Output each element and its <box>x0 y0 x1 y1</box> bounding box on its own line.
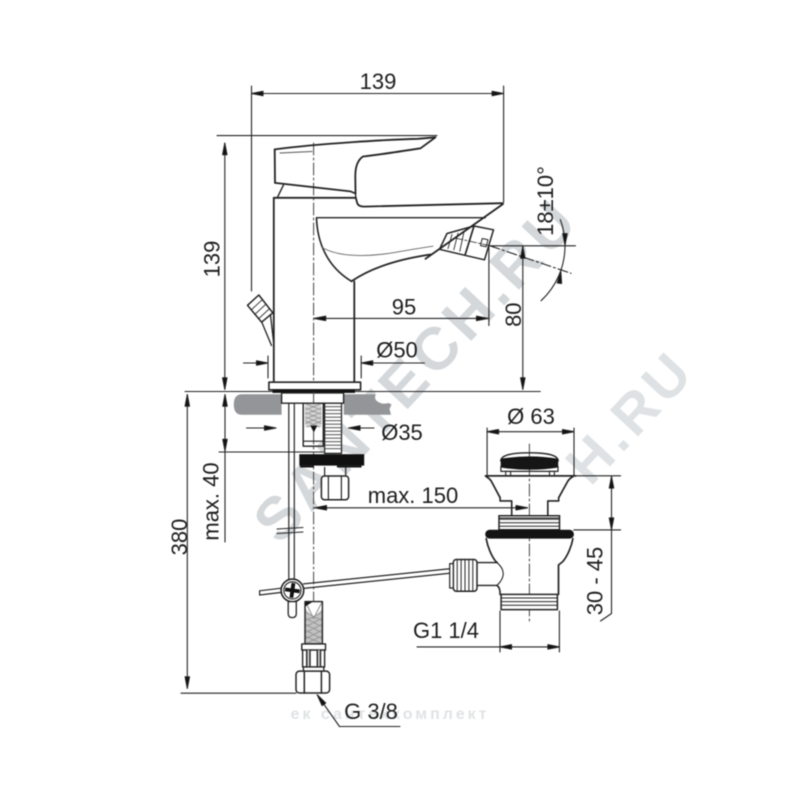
svg-text:380: 380 <box>167 519 192 556</box>
svg-text:80: 80 <box>501 302 526 326</box>
svg-text:Ø 63: Ø 63 <box>507 404 555 429</box>
svg-text:Ø35: Ø35 <box>381 420 423 445</box>
svg-text:max. 40: max. 40 <box>199 462 224 540</box>
svg-text:G1 1/4: G1 1/4 <box>413 618 479 643</box>
svg-text:Ø50: Ø50 <box>376 338 418 363</box>
svg-text:max. 150: max. 150 <box>368 483 459 508</box>
svg-text:G 3/8: G 3/8 <box>344 699 398 724</box>
svg-text:139: 139 <box>200 241 225 278</box>
svg-text:139: 139 <box>360 69 397 94</box>
svg-text:95: 95 <box>392 295 416 320</box>
svg-text:30 - 45: 30 - 45 <box>583 547 608 616</box>
svg-text:18±10°: 18±10° <box>533 166 558 236</box>
